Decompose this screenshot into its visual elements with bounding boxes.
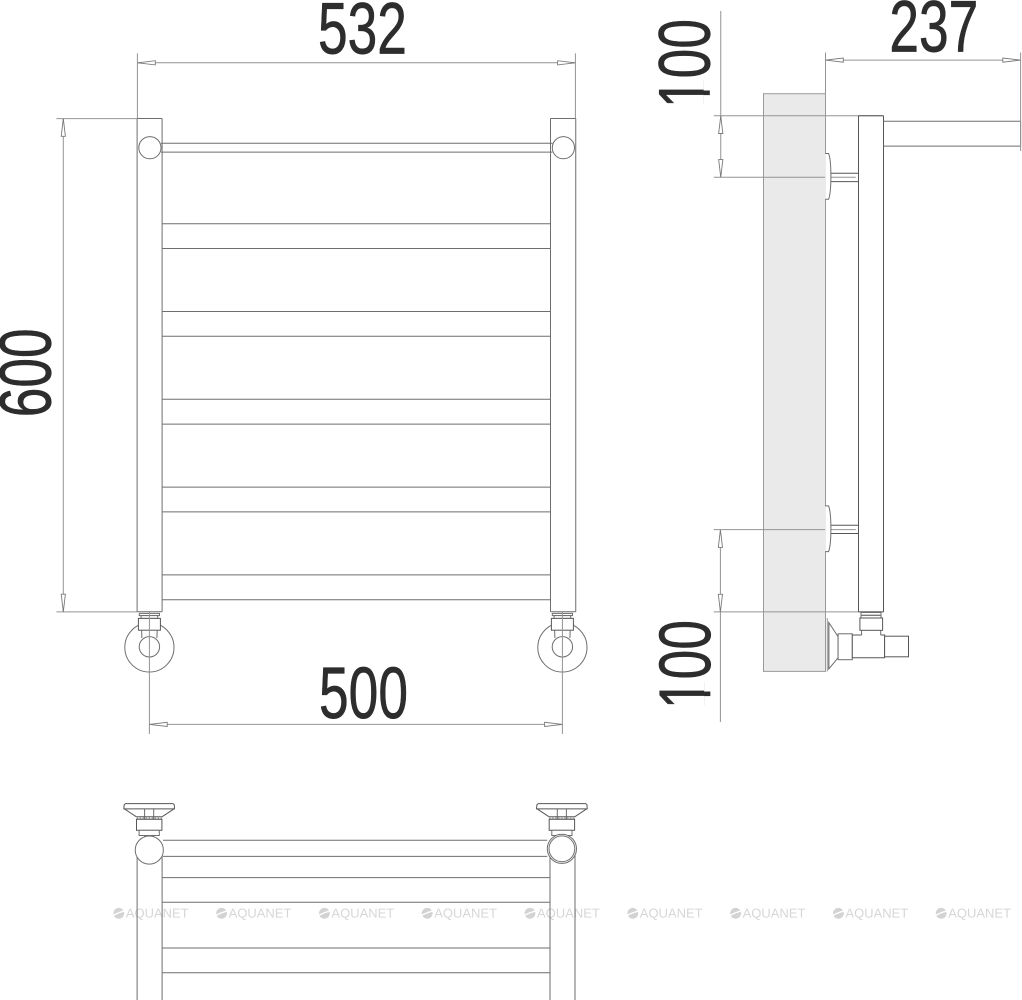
svg-text:237: 237 <box>889 0 978 68</box>
svg-text:100: 100 <box>645 19 726 108</box>
svg-text:500: 500 <box>319 653 408 734</box>
svg-text:100: 100 <box>645 620 726 709</box>
svg-text:600: 600 <box>0 328 66 417</box>
svg-text:532: 532 <box>318 0 407 70</box>
